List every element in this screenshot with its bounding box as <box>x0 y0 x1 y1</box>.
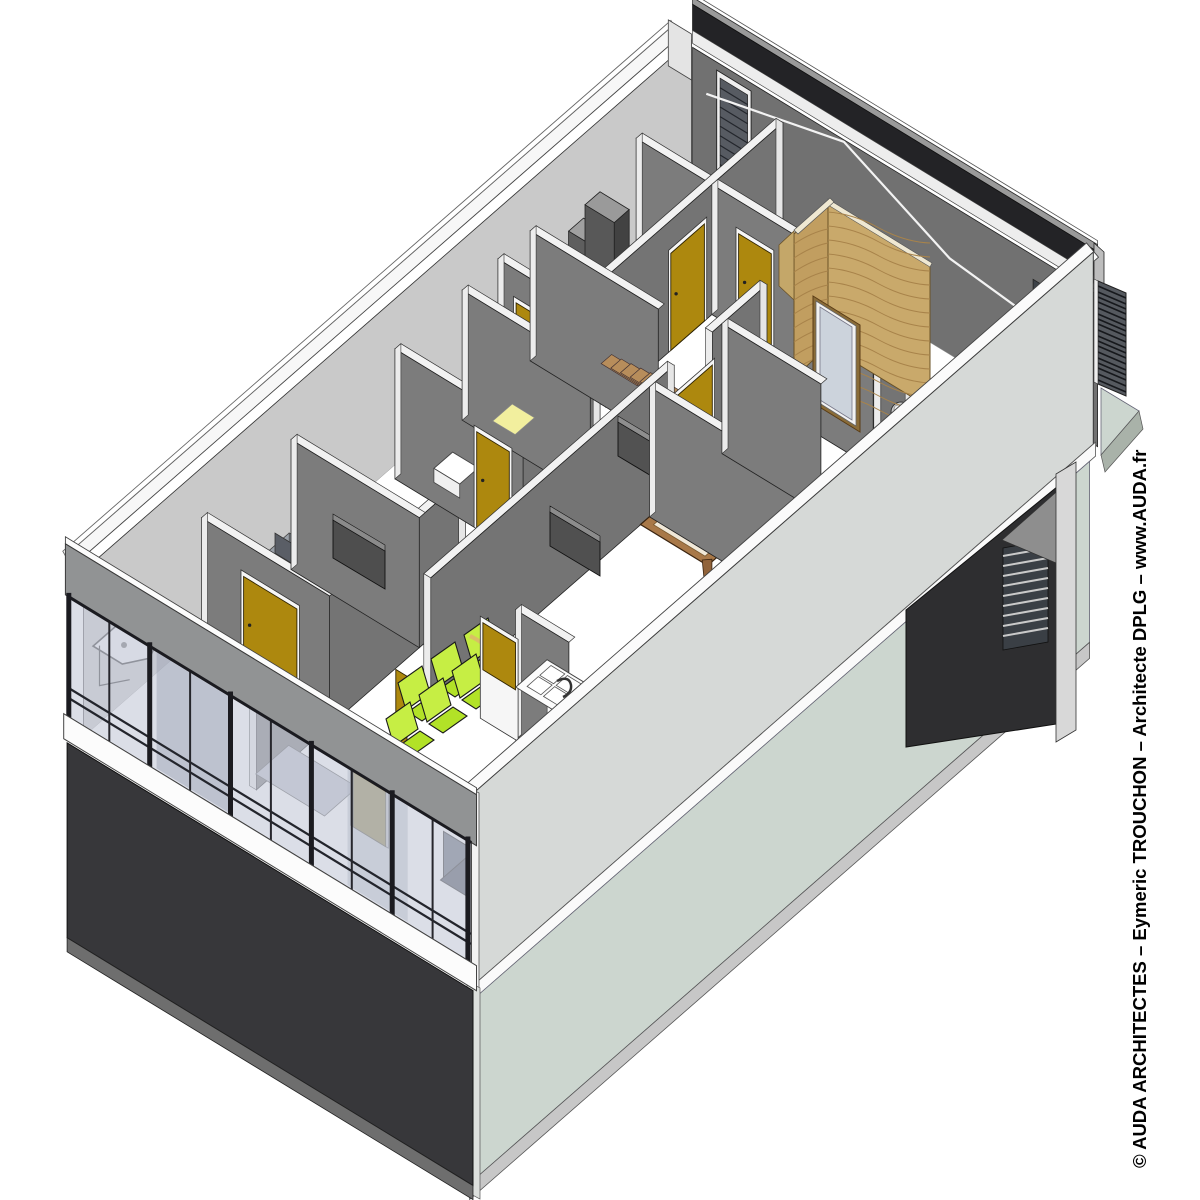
svg-text:© AUDA ARCHITECTES – Eymeric T: © AUDA ARCHITECTES – Eymeric TROUCHON – … <box>1129 450 1150 1168</box>
